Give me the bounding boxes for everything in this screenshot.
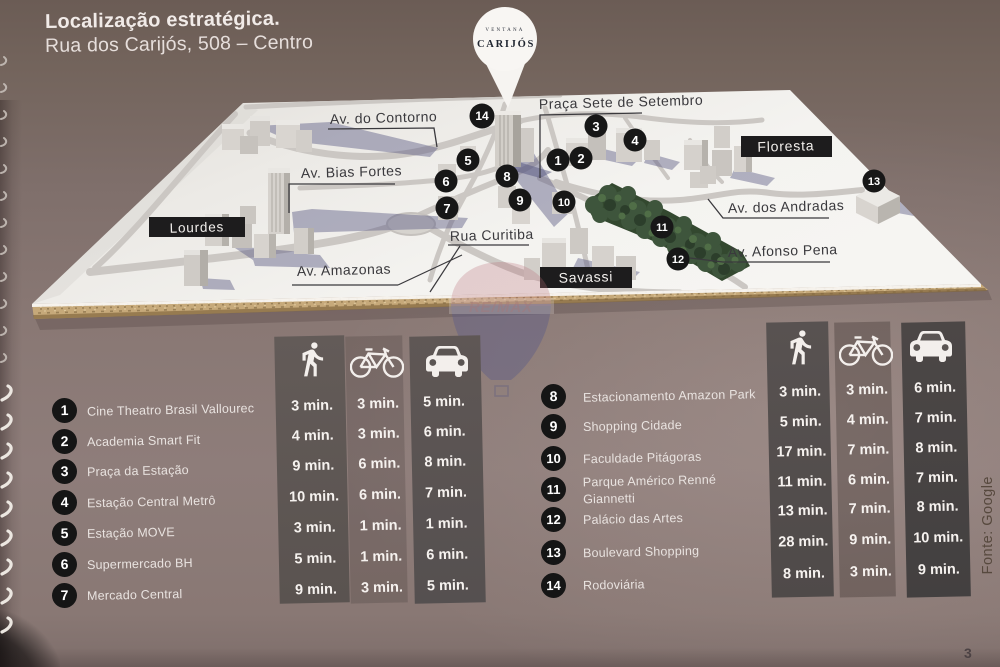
svg-text:Lourdes: Lourdes [169, 219, 224, 235]
svg-text:3: 3 [592, 119, 599, 134]
svg-text:Floresta: Floresta [757, 137, 814, 154]
svg-text:10: 10 [558, 197, 570, 209]
svg-text:1: 1 [554, 153, 561, 168]
svg-text:5: 5 [464, 153, 471, 168]
svg-text:Av. Amazonas: Av. Amazonas [297, 261, 392, 279]
svg-text:9: 9 [516, 193, 523, 208]
svg-text:11: 11 [656, 222, 668, 234]
svg-text:6: 6 [442, 174, 449, 189]
svg-text:8: 8 [503, 169, 510, 184]
svg-text:Av. dos Andradas: Av. dos Andradas [728, 197, 845, 216]
svg-text:13: 13 [868, 176, 880, 188]
svg-text:CARIJÓS: CARIJÓS [477, 38, 535, 50]
svg-text:14: 14 [475, 109, 489, 123]
svg-text:Savassi: Savassi [558, 268, 613, 285]
svg-text:7: 7 [443, 201, 450, 216]
svg-text:Av. do Contorno: Av. do Contorno [330, 108, 438, 127]
svg-text:4: 4 [631, 133, 639, 148]
svg-text:12: 12 [672, 254, 684, 266]
svg-text:RE/MAX: RE/MAX [469, 299, 533, 316]
svg-text:Av. Afonso Pena: Av. Afonso Pena [728, 241, 838, 260]
svg-text:Rua Curitiba: Rua Curitiba [450, 226, 534, 244]
svg-text:Av. Bias Fortes: Av. Bias Fortes [301, 162, 403, 181]
svg-text:2: 2 [577, 151, 584, 166]
svg-text:VENTANA: VENTANA [485, 28, 524, 33]
